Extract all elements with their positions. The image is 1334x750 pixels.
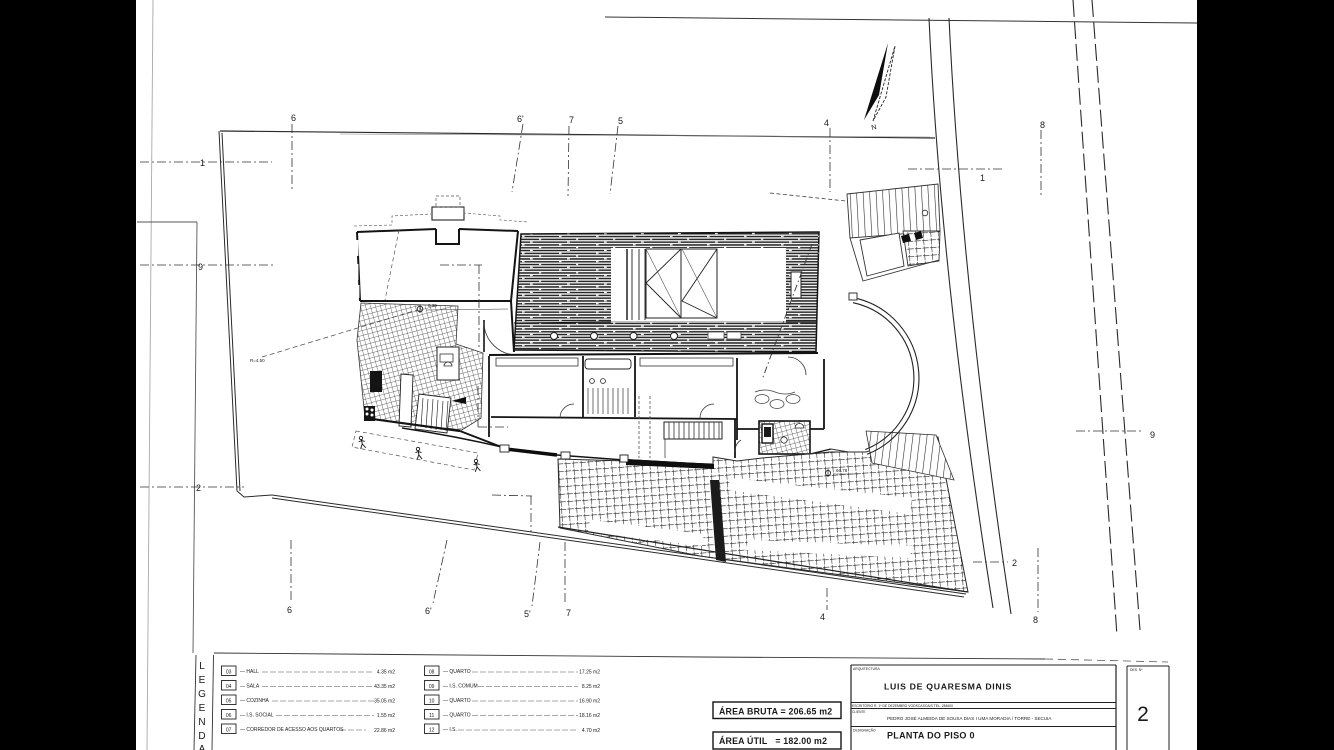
svg-text:2: 2 (1012, 558, 1017, 568)
svg-text:CLIENTE: CLIENTE (852, 710, 865, 714)
svg-text:03: 03 (226, 669, 232, 675)
svg-text:16.90 m2: 16.90 m2 (579, 699, 600, 705)
svg-text:4.70 m2: 4.70 m2 (582, 728, 600, 734)
svg-text:6: 6 (287, 605, 292, 615)
svg-text:4: 4 (824, 118, 829, 128)
svg-text:G: G (198, 689, 206, 700)
svg-text:— SALA: — SALA (240, 684, 260, 690)
svg-text:6': 6' (517, 114, 524, 124)
svg-text:17.25 m2: 17.25 m2 (579, 670, 600, 676)
svg-text:8.25 m2: 8.25 m2 (582, 684, 600, 690)
svg-text:12: 12 (429, 727, 435, 733)
svg-text:5: 5 (618, 116, 623, 126)
svg-text:66.78: 66.78 (836, 468, 848, 473)
svg-text:D: D (198, 731, 205, 742)
svg-text:43.35 m2: 43.35 m2 (374, 684, 395, 690)
svg-text:DES. Nº: DES. Nº (1130, 668, 1143, 672)
svg-text:1: 1 (980, 173, 985, 183)
svg-text:4.35 m2: 4.35 m2 (377, 670, 395, 676)
svg-text:— QUARTO: — QUARTO (443, 698, 471, 704)
svg-text:— QUARTO: — QUARTO (443, 713, 471, 719)
svg-text:ÁREA BRUTA = 206.65 m2: ÁREA BRUTA = 206.65 m2 (719, 707, 832, 717)
svg-text:7: 7 (569, 115, 574, 125)
svg-text:4: 4 (820, 612, 825, 622)
svg-text:07: 07 (226, 727, 232, 733)
svg-text:04: 04 (226, 684, 232, 690)
svg-text:ÁREA ÚTIL = 182.00 m2: ÁREA ÚTIL = 182.00 m2 (719, 735, 827, 746)
svg-text:ESCRITÓRIO R. 1º DE DEZEMBRO: ESCRITÓRIO R. 1º DE DEZEMBRO VODSCASCAIS… (852, 703, 953, 708)
svg-text:ARQUITECTURA: ARQUITECTURA (853, 667, 880, 671)
svg-text:— QUARTO: — QUARTO (443, 669, 471, 675)
svg-text:— I.S. COMUM: — I.S. COMUM (443, 684, 478, 690)
svg-text:5': 5' (524, 609, 531, 619)
svg-text:LUIS DE QUARESMA DINIS: LUIS DE QUARESMA DINIS (884, 682, 1012, 692)
svg-text:8: 8 (1040, 120, 1045, 130)
svg-text:06: 06 (226, 713, 232, 719)
svg-text:18.16 m2: 18.16 m2 (579, 713, 600, 719)
svg-text:E: E (199, 703, 206, 714)
svg-text:DESIGNAÇÃO: DESIGNAÇÃO (853, 728, 876, 733)
svg-text:11: 11 (429, 713, 434, 719)
svg-text:1: 1 (200, 158, 205, 168)
svg-text:L: L (199, 661, 205, 672)
svg-text:PEDRO JOSÉ ALMEIDA DE SOUSA DI: PEDRO JOSÉ ALMEIDA DE SOUSA DIAS I UMA M… (887, 715, 1052, 721)
svg-text:— CORREDOR DE ACESSO AOS QUART: — CORREDOR DE ACESSO AOS QUARTOS (240, 727, 344, 733)
svg-text:— I.S.: — I.S. (443, 727, 457, 733)
svg-text:1.55 m2: 1.55 m2 (377, 713, 395, 719)
svg-text:05: 05 (226, 698, 232, 704)
svg-text:2: 2 (1137, 703, 1149, 726)
svg-text:35.05 m2: 35.05 m2 (374, 699, 395, 705)
svg-text:08: 08 (429, 669, 435, 675)
svg-text:R=4.50: R=4.50 (250, 358, 265, 363)
svg-text:6: 6 (291, 113, 296, 123)
svg-text:PLANTA DO PISO 0: PLANTA DO PISO 0 (887, 731, 975, 741)
svg-text:— HALL: — HALL (240, 669, 259, 675)
svg-text:9: 9 (198, 262, 203, 272)
svg-text:9: 9 (1150, 430, 1155, 440)
svg-text:8: 8 (1033, 615, 1038, 625)
svg-text:E: E (199, 675, 206, 686)
svg-text:N: N (198, 717, 205, 728)
svg-text:0.30: 0.30 (428, 303, 437, 308)
svg-text:2: 2 (196, 483, 201, 493)
svg-text:A: A (199, 744, 206, 750)
svg-text:6': 6' (425, 606, 432, 616)
svg-text:09: 09 (429, 684, 435, 690)
svg-text:22.86 m2: 22.86 m2 (374, 728, 395, 734)
svg-text:— COZINHA: — COZINHA (240, 698, 270, 704)
svg-text:— I.S. SOCIAL: — I.S. SOCIAL (240, 713, 274, 719)
svg-text:10: 10 (429, 698, 435, 704)
svg-text:7: 7 (566, 608, 571, 618)
